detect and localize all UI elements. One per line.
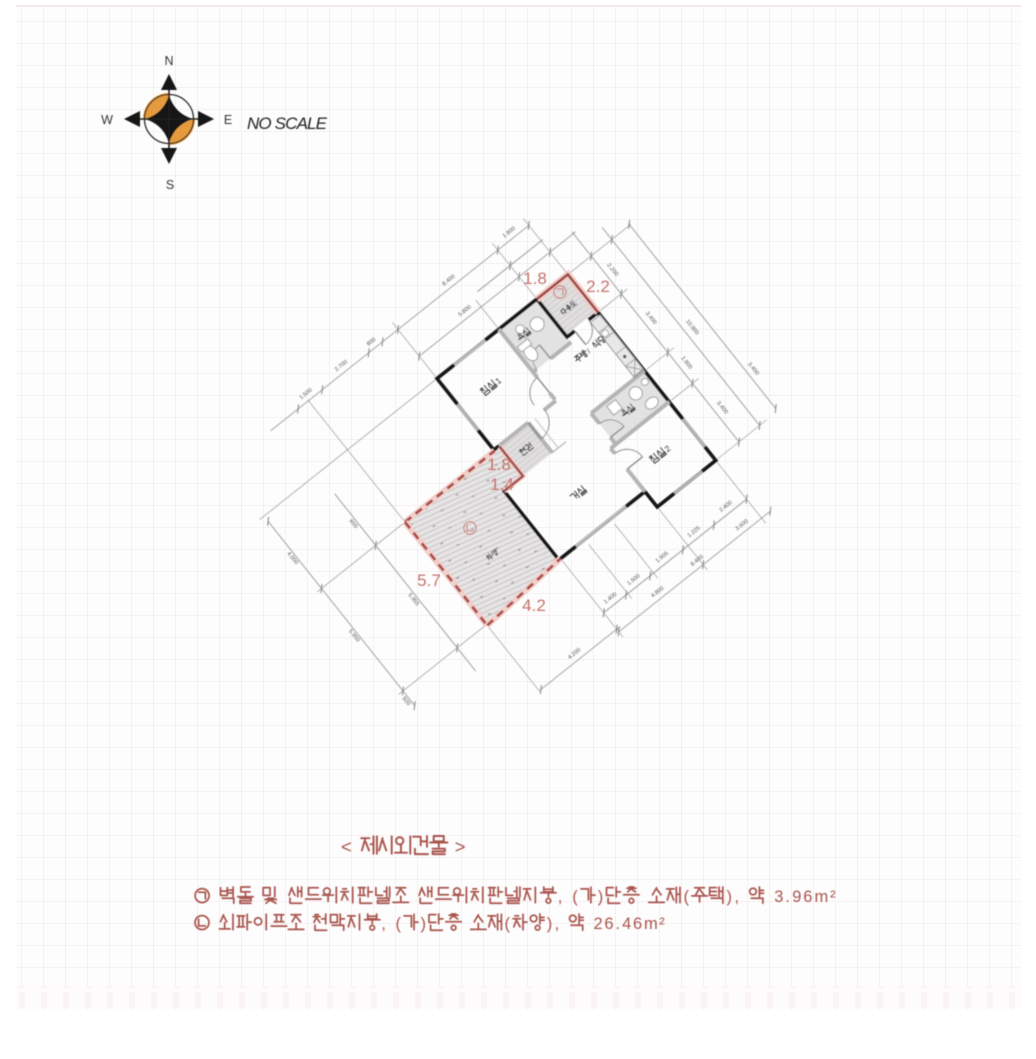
svg-text:6: 6 [803,888,812,906]
svg-text:,: , [735,888,740,906]
svg-text:3: 3 [774,888,783,906]
svg-text:(: ( [396,915,402,933]
svg-text:(: ( [684,888,690,906]
svg-text:,: , [558,888,563,906]
svg-text:): ) [547,915,553,933]
svg-text:N: N [164,54,173,68]
svg-text:1.8: 1.8 [523,269,547,288]
svg-text:1.4: 1.4 [490,475,514,494]
svg-text:1.8: 1.8 [487,455,511,474]
svg-text:): ) [421,915,427,933]
svg-text:>: > [455,836,466,857]
svg-text:): ) [598,888,604,906]
svg-text:4: 4 [622,915,631,933]
svg-text:): ) [727,888,733,906]
svg-text:W: W [101,113,113,127]
svg-text:²: ² [659,915,665,933]
svg-text:E: E [224,113,232,127]
svg-text:6: 6 [633,915,642,933]
svg-text:.: . [785,888,790,906]
svg-text:.: . [615,915,620,933]
svg-text:(: ( [572,888,578,906]
svg-text:NO SCALE: NO SCALE [247,114,328,133]
svg-text:4.2: 4.2 [522,596,546,615]
svg-text:,: , [381,915,386,933]
svg-text:²: ² [830,888,836,906]
svg-text:m: m [644,915,658,933]
svg-text:9: 9 [792,888,801,906]
svg-text:2: 2 [594,915,603,933]
svg-text:6: 6 [604,915,613,933]
svg-text:,: , [555,915,560,933]
svg-text:2.2: 2.2 [586,277,610,296]
svg-text:S: S [166,178,174,192]
svg-text:<: < [341,836,352,857]
svg-text:(: ( [505,915,511,933]
svg-text:5.7: 5.7 [417,571,441,590]
svg-text:m: m [815,888,829,906]
